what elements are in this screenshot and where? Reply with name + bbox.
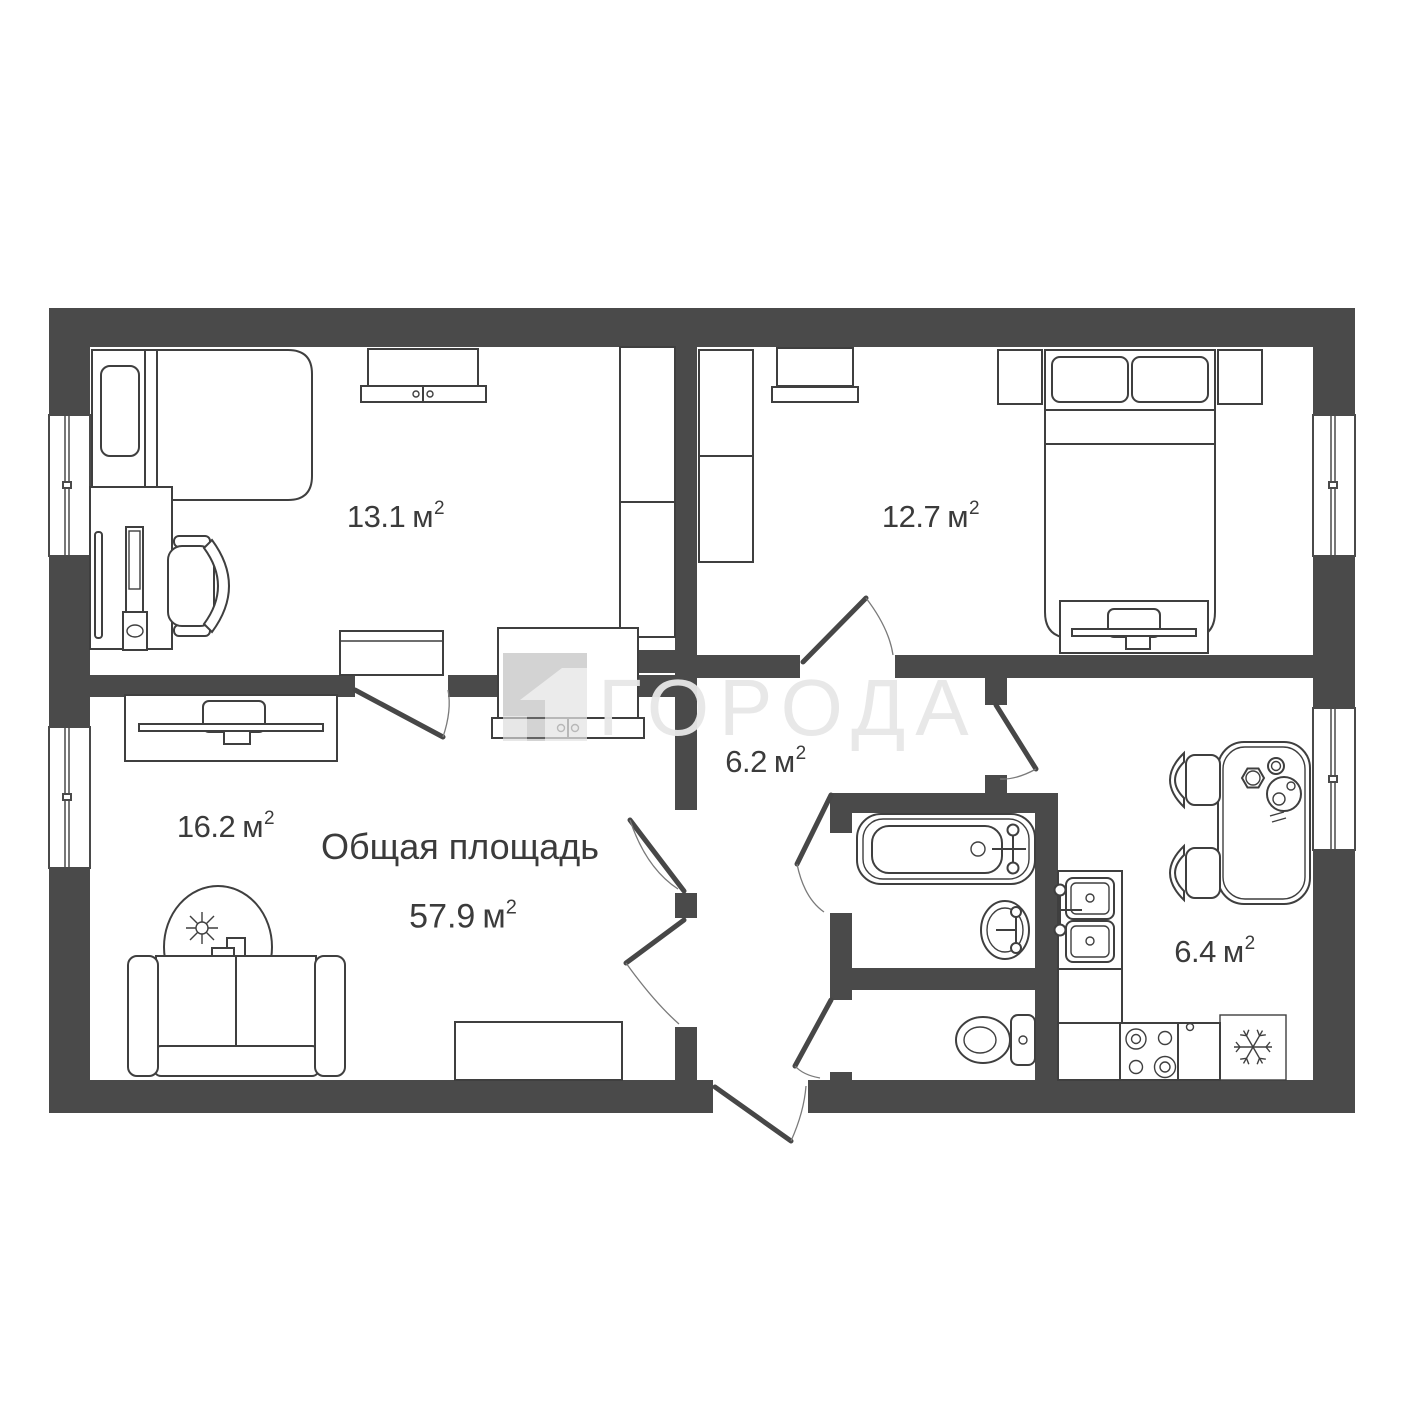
door-top-left-room	[355, 690, 449, 737]
fridge	[1220, 1015, 1286, 1080]
wall-hall-left	[675, 1027, 697, 1080]
counter-corner	[1058, 1023, 1120, 1080]
washbasin	[981, 901, 1029, 959]
dining-table	[1218, 742, 1310, 904]
teapot	[1267, 777, 1301, 811]
wall-shelf	[361, 349, 486, 402]
room-area-label-16-2: 16.2м2	[177, 809, 273, 845]
wall-living-top	[90, 675, 355, 697]
door-toilet	[795, 1000, 831, 1078]
wall-bathroom-right	[1035, 793, 1058, 1080]
wall-bathroom-top	[830, 793, 1058, 813]
door-kitchen	[996, 705, 1036, 779]
wall-top	[49, 308, 1355, 347]
room-area-label-6-4: 6.4м2	[1174, 934, 1254, 970]
sofa-armrest	[128, 956, 158, 1076]
counter	[1058, 969, 1122, 1023]
door-bathroom	[797, 795, 831, 912]
wardrobe	[699, 350, 753, 562]
toilet	[956, 1015, 1035, 1065]
toilet-tank	[1011, 1015, 1035, 1065]
wardrobe	[620, 347, 675, 637]
sofa	[128, 956, 345, 1076]
room-area-label-12-7: 12.7м2	[882, 499, 978, 535]
desk-lamp	[95, 532, 102, 638]
cup	[1268, 758, 1284, 774]
pillow	[1052, 357, 1128, 402]
cabinet	[455, 1022, 622, 1080]
office-chair	[168, 536, 229, 636]
plant-icon	[186, 912, 218, 944]
window	[1313, 708, 1355, 850]
wall-right	[1313, 850, 1355, 1113]
nightstand	[998, 350, 1042, 404]
wall-right	[1313, 308, 1355, 415]
room-area-label-6-2: 6.2м2	[725, 744, 805, 780]
total-area-value: 57.9м2	[409, 898, 517, 937]
snowflake-icon	[1234, 1028, 1272, 1066]
watermark-text: ГОРОДА	[598, 662, 979, 754]
sofa-armrest	[315, 956, 345, 1076]
chair	[1170, 846, 1220, 900]
wall-kitchen-stub	[985, 775, 1007, 793]
pillow	[101, 366, 139, 456]
pillow	[1132, 357, 1208, 402]
dresser	[340, 631, 443, 675]
wall-left	[49, 308, 90, 415]
wall-bathroom-left	[830, 813, 852, 833]
tv-stand	[1060, 601, 1208, 653]
chair	[1170, 753, 1220, 807]
wall-bath-toilet-divider	[830, 968, 1058, 990]
bathroom-fixtures	[857, 814, 1035, 1065]
wall-bottom-left	[49, 1080, 713, 1113]
total-area-label: Общая площадь	[321, 826, 599, 868]
bedroom-top-right-furniture	[699, 348, 1262, 653]
kitchen-furniture	[1055, 742, 1311, 1080]
door-living-opening	[626, 820, 684, 1024]
floor-plan-page: ГОРОДА 13.1м2 12.7м2 16.2м2 6.2м2 6.4м2 …	[0, 0, 1404, 1404]
door-bedroom-right	[803, 598, 893, 662]
single-bed	[92, 350, 312, 500]
room-area-label-13-1: 13.1м2	[347, 499, 443, 535]
kitchen-sink	[1055, 871, 1123, 969]
bathtub	[857, 814, 1035, 884]
nightstand	[1218, 350, 1262, 404]
wall-bottom-right	[808, 1080, 1355, 1113]
window	[49, 727, 90, 868]
wall-bathroom-left	[830, 1072, 852, 1080]
wall-left	[49, 556, 90, 727]
window	[1313, 415, 1355, 556]
double-bed	[1045, 350, 1215, 638]
counter	[1178, 1023, 1220, 1080]
door-entrance	[715, 1086, 806, 1141]
desk	[90, 487, 172, 650]
wall-right	[1313, 556, 1355, 708]
wall-left	[49, 868, 90, 1113]
wall-divider-bedrooms	[675, 347, 697, 650]
stove	[1120, 1023, 1178, 1080]
window	[49, 415, 90, 556]
wall-hall-left-stub	[675, 893, 697, 918]
tv-stand	[125, 695, 337, 761]
wall-kitchen-stub	[985, 678, 1007, 705]
watermark-logo	[503, 653, 587, 741]
wall-shelf	[772, 348, 858, 402]
